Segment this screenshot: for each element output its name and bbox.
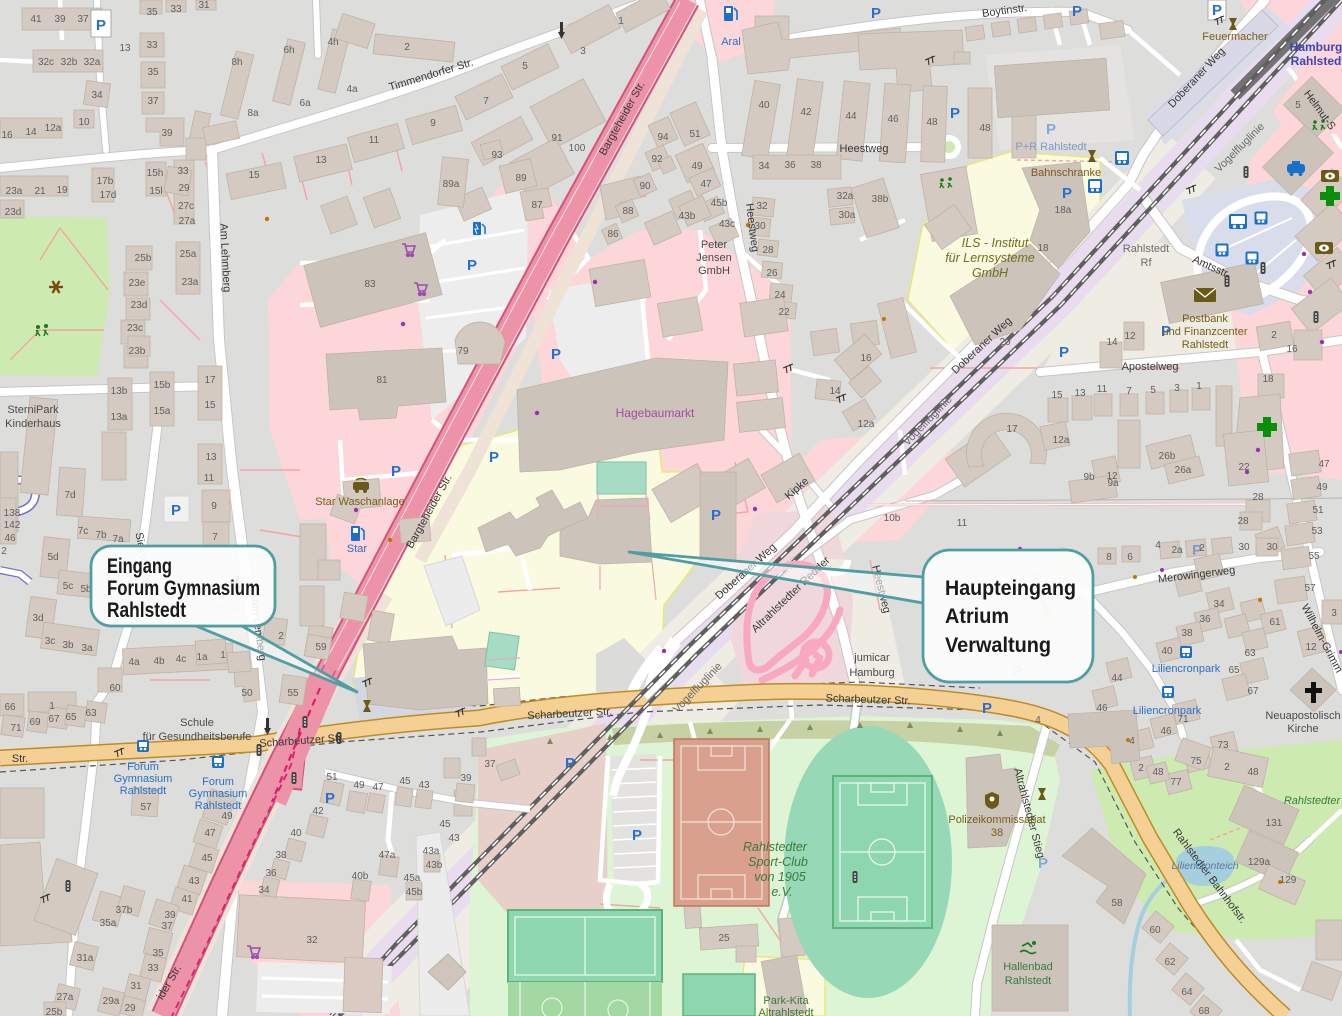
svg-text:5d: 5d (47, 552, 58, 563)
svg-text:P: P (871, 5, 881, 22)
svg-text:129a: 129a (1248, 857, 1271, 868)
svg-text:Forum: Forum (202, 776, 234, 788)
svg-text:71: 71 (1177, 714, 1189, 725)
svg-text:Liliencronpark: Liliencronpark (1152, 663, 1221, 675)
svg-text:38b: 38b (872, 194, 889, 205)
svg-text:46: 46 (1160, 726, 1172, 737)
svg-text:1: 1 (220, 650, 226, 661)
svg-text:35: 35 (146, 7, 158, 18)
svg-text:2: 2 (1, 546, 7, 557)
svg-text:4a: 4a (346, 84, 358, 95)
svg-text:43: 43 (418, 780, 430, 791)
svg-text:7c: 7c (78, 526, 89, 537)
svg-text:11: 11 (204, 473, 215, 484)
svg-text:48: 48 (926, 117, 938, 128)
svg-text:29a: 29a (103, 996, 120, 1007)
svg-text:37: 37 (161, 921, 173, 932)
svg-text:33: 33 (147, 963, 159, 974)
svg-text:37: 37 (484, 759, 496, 770)
svg-text:89a: 89a (443, 179, 460, 190)
svg-text:Park-Kita: Park-Kita (763, 995, 809, 1007)
svg-text:7: 7 (212, 532, 218, 543)
svg-text:24: 24 (774, 290, 786, 301)
svg-text:10b: 10b (884, 513, 901, 524)
svg-text:7: 7 (1126, 386, 1132, 397)
svg-text:P: P (171, 502, 181, 519)
svg-text:P: P (489, 449, 499, 466)
svg-text:Rahlstedt: Rahlstedt (1005, 975, 1051, 987)
svg-text:12: 12 (1305, 642, 1317, 653)
svg-text:35: 35 (147, 67, 159, 78)
svg-text:43: 43 (448, 833, 460, 844)
svg-text:51: 51 (326, 772, 338, 783)
svg-text:4: 4 (1155, 540, 1161, 551)
svg-text:49: 49 (691, 161, 703, 172)
svg-text:36: 36 (265, 868, 277, 879)
svg-text:38: 38 (991, 827, 1003, 839)
svg-text:41: 41 (30, 14, 42, 25)
svg-text:91: 91 (551, 133, 563, 144)
svg-text:Atrium: Atrium (945, 604, 1009, 628)
svg-text:P: P (1062, 185, 1072, 202)
svg-text:1: 1 (618, 16, 624, 27)
svg-text:36: 36 (784, 160, 796, 171)
svg-text:35: 35 (152, 948, 164, 959)
svg-text:23d: 23d (131, 300, 148, 311)
svg-text:18a: 18a (1055, 205, 1072, 216)
svg-text:39: 39 (164, 910, 176, 921)
svg-text:34: 34 (1213, 599, 1225, 610)
svg-text:Rahlstedter: Rahlstedter (1284, 795, 1342, 807)
svg-text:Rahlstedt-: Rahlstedt- (1291, 54, 1342, 68)
svg-text:Hagebaumarkt: Hagebaumarkt (616, 406, 695, 420)
svg-text:P: P (1046, 121, 1056, 138)
svg-text:63: 63 (85, 708, 97, 719)
svg-text:15: 15 (1051, 390, 1063, 401)
svg-text:46: 46 (4, 533, 16, 544)
svg-text:8h: 8h (231, 57, 242, 68)
svg-text:68: 68 (1198, 1006, 1210, 1016)
svg-text:17: 17 (204, 375, 216, 386)
svg-text:GmbH: GmbH (698, 265, 730, 277)
svg-text:28: 28 (762, 245, 774, 256)
svg-text:SterniPark: SterniPark (7, 404, 59, 416)
svg-text:66: 66 (4, 702, 16, 713)
svg-text:81: 81 (376, 375, 388, 386)
svg-text:GmbH: GmbH (972, 266, 1009, 280)
svg-text:22: 22 (1238, 462, 1250, 473)
svg-text:39: 39 (54, 14, 66, 25)
svg-text:3: 3 (1174, 383, 1180, 394)
svg-text:40: 40 (1161, 646, 1173, 657)
svg-text:55: 55 (287, 688, 299, 699)
svg-text:38: 38 (275, 850, 287, 861)
svg-text:13b: 13b (111, 386, 128, 397)
svg-text:131: 131 (1266, 818, 1283, 829)
svg-text:93: 93 (491, 150, 503, 161)
svg-text:2: 2 (1138, 763, 1144, 774)
svg-text:89: 89 (515, 173, 527, 184)
svg-text:P: P (467, 257, 477, 274)
svg-text:Aral: Aral (721, 36, 741, 48)
svg-text:6: 6 (1127, 552, 1133, 563)
svg-text:12: 12 (1106, 471, 1118, 482)
svg-text:30a: 30a (839, 210, 856, 221)
svg-text:Bahnschranke: Bahnschranke (1031, 167, 1101, 179)
svg-text:P+R Rahlstedt: P+R Rahlstedt (1015, 141, 1086, 153)
svg-text:25a: 25a (180, 249, 197, 260)
svg-text:67: 67 (1247, 686, 1259, 697)
svg-text:40b: 40b (352, 871, 369, 882)
svg-text:14: 14 (829, 386, 841, 397)
svg-text:Star Waschanlage: Star Waschanlage (315, 496, 404, 508)
svg-text:79: 79 (457, 346, 469, 357)
svg-text:Rahlstedt: Rahlstedt (195, 800, 241, 812)
svg-text:Kinderhaus: Kinderhaus (5, 418, 61, 430)
svg-text:Liliencronteich: Liliencronteich (1171, 860, 1238, 872)
svg-text:30: 30 (754, 221, 766, 232)
svg-text:10: 10 (78, 117, 90, 128)
svg-text:2: 2 (1271, 330, 1277, 341)
svg-text:29: 29 (124, 1003, 136, 1014)
svg-text:69: 69 (29, 717, 41, 728)
svg-text:11: 11 (957, 518, 968, 529)
svg-text:e.V.: e.V. (771, 885, 792, 899)
svg-text:33: 33 (170, 4, 182, 15)
svg-text:35a: 35a (100, 918, 117, 929)
svg-text:Jensen: Jensen (696, 252, 731, 264)
svg-text:34: 34 (91, 90, 103, 101)
svg-text:und Finanzcenter: und Finanzcenter (1163, 326, 1248, 338)
svg-text:86: 86 (607, 229, 619, 240)
svg-text:19: 19 (56, 185, 68, 196)
svg-text:83: 83 (364, 279, 376, 290)
svg-text:Haupteingang: Haupteingang (945, 576, 1076, 600)
svg-text:45a: 45a (404, 873, 421, 884)
svg-text:45: 45 (439, 819, 451, 830)
svg-text:13: 13 (205, 452, 217, 463)
svg-text:18: 18 (1262, 374, 1274, 385)
svg-text:23e: 23e (129, 278, 146, 289)
svg-text:138: 138 (4, 508, 21, 519)
svg-text:2a: 2a (1171, 545, 1183, 556)
svg-text:48: 48 (1152, 767, 1164, 778)
svg-text:47: 47 (204, 828, 216, 839)
svg-text:17b: 17b (97, 176, 114, 187)
svg-text:33: 33 (177, 166, 189, 177)
svg-text:3: 3 (580, 46, 586, 57)
svg-text:47a: 47a (379, 850, 396, 861)
svg-text:6h: 6h (283, 45, 294, 56)
svg-text:75: 75 (1190, 756, 1202, 767)
svg-text:39: 39 (460, 773, 472, 784)
svg-text:64: 64 (1181, 987, 1193, 998)
svg-text:26a: 26a (1175, 465, 1192, 476)
svg-text:51: 51 (1312, 505, 1324, 516)
svg-text:13: 13 (1074, 388, 1086, 399)
svg-text:Kirche: Kirche (1287, 723, 1318, 735)
svg-text:7b: 7b (95, 530, 107, 541)
svg-text:23d: 23d (5, 207, 22, 218)
svg-text:27c: 27c (178, 201, 194, 212)
svg-text:42: 42 (312, 806, 324, 817)
svg-text:37: 37 (147, 96, 159, 107)
svg-text:40: 40 (290, 828, 302, 839)
svg-text:für Lernsysteme: für Lernsysteme (945, 251, 1035, 265)
svg-text:34: 34 (758, 161, 770, 172)
svg-text:49: 49 (1316, 482, 1328, 493)
svg-text:Rahlstedt: Rahlstedt (120, 785, 166, 797)
svg-text:23a: 23a (6, 186, 23, 197)
svg-text:12a: 12a (45, 123, 62, 134)
svg-text:15l: 15l (149, 186, 162, 197)
svg-text:15: 15 (248, 170, 260, 181)
svg-text:45: 45 (201, 853, 213, 864)
svg-text:50: 50 (241, 688, 253, 699)
svg-text:26: 26 (766, 268, 778, 279)
svg-text:für Gesundheitsberufe: für Gesundheitsberufe (143, 731, 252, 743)
svg-text:31: 31 (130, 981, 142, 992)
svg-text:7: 7 (483, 96, 489, 107)
svg-text:61: 61 (1269, 617, 1281, 628)
svg-text:87: 87 (531, 200, 543, 211)
svg-text:53: 53 (1311, 526, 1323, 537)
svg-text:Hamburg-: Hamburg- (1290, 40, 1342, 54)
svg-text:Rahlstedter: Rahlstedter (743, 840, 808, 854)
svg-text:13: 13 (315, 155, 327, 166)
svg-text:32c: 32c (38, 57, 54, 68)
svg-text:42: 42 (800, 107, 812, 118)
svg-text:94: 94 (657, 132, 669, 143)
svg-text:16: 16 (860, 353, 872, 364)
svg-text:Feuermacher: Feuermacher (1202, 31, 1268, 43)
svg-text:15: 15 (204, 400, 216, 411)
svg-text:4b: 4b (153, 656, 165, 667)
svg-text:100: 100 (569, 143, 586, 154)
svg-text:65: 65 (1228, 665, 1240, 676)
svg-text:43b: 43b (679, 211, 696, 222)
svg-text:3d: 3d (32, 613, 43, 624)
svg-text:Star: Star (347, 543, 368, 555)
svg-text:jumicar: jumicar (853, 652, 890, 664)
svg-text:7d: 7d (64, 490, 75, 501)
svg-text:13: 13 (119, 43, 131, 54)
svg-text:4: 4 (1035, 715, 1041, 726)
svg-text:Neuapostolisch: Neuapostolisch (1265, 710, 1340, 722)
svg-text:57: 57 (1304, 583, 1316, 594)
svg-text:15b: 15b (154, 380, 171, 391)
svg-text:28: 28 (1237, 516, 1249, 527)
svg-text:1: 1 (49, 701, 55, 712)
svg-text:3: 3 (1331, 608, 1337, 619)
svg-text:4h: 4h (327, 37, 338, 48)
svg-text:23b: 23b (129, 346, 146, 357)
svg-text:3c: 3c (45, 636, 56, 647)
svg-text:Peter: Peter (701, 239, 728, 251)
svg-text:40: 40 (758, 100, 770, 111)
svg-text:P: P (982, 700, 992, 717)
svg-text:Verwaltung: Verwaltung (945, 633, 1051, 657)
svg-text:45b: 45b (406, 887, 423, 898)
svg-text:49: 49 (221, 811, 233, 822)
svg-text:92: 92 (651, 154, 663, 165)
svg-text:73: 73 (1217, 740, 1229, 751)
svg-text:45b: 45b (711, 198, 728, 209)
svg-text:45: 45 (399, 776, 411, 787)
svg-text:P: P (950, 105, 960, 122)
svg-text:30: 30 (1266, 542, 1278, 553)
svg-text:Hamburg: Hamburg (849, 667, 894, 679)
svg-text:32a: 32a (837, 191, 854, 202)
svg-text:25b: 25b (46, 1007, 63, 1016)
svg-text:25b: 25b (135, 253, 152, 264)
svg-text:6a: 6a (299, 98, 311, 109)
svg-text:17d: 17d (100, 190, 117, 201)
svg-text:4a: 4a (128, 657, 140, 668)
svg-text:20: 20 (999, 337, 1011, 348)
svg-text:48: 48 (979, 123, 991, 134)
svg-text:22: 22 (778, 307, 790, 318)
svg-text:48: 48 (1247, 767, 1259, 778)
svg-text:47: 47 (700, 179, 712, 190)
svg-text:4c: 4c (176, 654, 187, 665)
svg-text:15h: 15h (147, 168, 164, 179)
svg-text:1: 1 (1196, 381, 1202, 392)
svg-text:Apostelweg: Apostelweg (1122, 361, 1179, 373)
svg-text:8a: 8a (247, 108, 259, 119)
svg-text:39: 39 (161, 128, 173, 139)
svg-text:1a: 1a (196, 652, 208, 663)
svg-text:9b: 9b (1083, 472, 1095, 483)
svg-text:8: 8 (1106, 552, 1112, 563)
svg-text:47: 47 (1318, 459, 1330, 470)
svg-text:2: 2 (1199, 543, 1205, 554)
svg-text:28: 28 (1252, 492, 1264, 503)
svg-text:47: 47 (372, 782, 384, 793)
svg-text:P: P (1059, 344, 1069, 361)
svg-text:Str.: Str. (12, 753, 29, 765)
svg-text:46: 46 (1096, 703, 1108, 714)
svg-text:32: 32 (306, 935, 318, 946)
svg-text:38: 38 (1181, 628, 1193, 639)
svg-text:11: 11 (369, 135, 380, 146)
svg-text:58: 58 (1111, 898, 1123, 909)
svg-text:37: 37 (77, 14, 89, 25)
svg-text:ILS - Institut: ILS - Institut (962, 236, 1029, 250)
svg-text:9: 9 (211, 501, 217, 512)
svg-text:41: 41 (181, 894, 193, 905)
svg-text:P: P (325, 790, 335, 807)
svg-text:Sport-Club: Sport-Club (748, 855, 808, 869)
svg-text:Rahlstedt: Rahlstedt (1182, 339, 1228, 351)
svg-text:77: 77 (1170, 777, 1182, 788)
svg-text:51: 51 (689, 129, 701, 140)
svg-text:32b: 32b (61, 57, 78, 68)
svg-text:Altrahlstedt: Altrahlstedt (758, 1007, 813, 1016)
svg-text:18: 18 (1037, 243, 1049, 254)
svg-text:25: 25 (718, 933, 730, 944)
svg-text:Forum Gymnasium: Forum Gymnasium (107, 576, 260, 600)
svg-text:2: 2 (404, 42, 410, 53)
svg-text:5: 5 (522, 61, 528, 72)
svg-text:32a: 32a (84, 57, 101, 68)
svg-text:Gymnasium: Gymnasium (114, 773, 173, 785)
svg-text:5: 5 (1295, 100, 1301, 111)
svg-text:Schule: Schule (180, 717, 214, 729)
svg-text:11: 11 (1097, 384, 1108, 395)
svg-text:30: 30 (1238, 542, 1250, 553)
svg-text:33: 33 (146, 40, 158, 51)
svg-text:63: 63 (1244, 648, 1256, 659)
svg-text:5: 5 (1150, 385, 1156, 396)
svg-text:37b: 37b (116, 905, 133, 916)
svg-text:17: 17 (1006, 424, 1018, 435)
svg-text:P: P (551, 346, 561, 363)
svg-text:4: 4 (1129, 736, 1135, 747)
svg-text:29: 29 (178, 183, 190, 194)
svg-text:46: 46 (887, 114, 899, 125)
svg-text:Liliencronpark: Liliencronpark (1133, 705, 1202, 717)
svg-text:P: P (1212, 2, 1222, 19)
svg-text:142: 142 (4, 520, 21, 531)
svg-text:P: P (711, 507, 721, 524)
svg-text:62: 62 (1164, 957, 1176, 968)
svg-text:14: 14 (25, 127, 37, 138)
svg-text:Forum: Forum (127, 761, 159, 773)
svg-text:Heestweg: Heestweg (840, 143, 889, 155)
svg-text:60: 60 (1149, 925, 1161, 936)
svg-text:90: 90 (639, 181, 651, 192)
svg-text:129: 129 (1280, 875, 1297, 886)
svg-text:88: 88 (622, 206, 634, 217)
svg-text:49: 49 (353, 780, 365, 791)
svg-text:12a: 12a (858, 419, 875, 430)
svg-text:P: P (565, 755, 575, 772)
svg-text:12: 12 (1124, 331, 1136, 342)
svg-text:60: 60 (109, 683, 121, 694)
svg-text:Postbank: Postbank (1182, 313, 1228, 325)
svg-text:21: 21 (34, 186, 46, 197)
svg-text:34: 34 (258, 885, 270, 896)
svg-text:9: 9 (430, 118, 436, 129)
svg-text:44: 44 (1111, 673, 1123, 684)
svg-text:Rahlstedt: Rahlstedt (107, 598, 186, 622)
svg-text:27a: 27a (179, 216, 196, 227)
svg-text:2: 2 (1224, 762, 1230, 773)
svg-text:P: P (1072, 3, 1082, 20)
svg-text:7a: 7a (112, 534, 124, 545)
svg-text:von 1905: von 1905 (754, 870, 805, 884)
svg-text:55: 55 (1308, 551, 1320, 562)
svg-text:31: 31 (198, 0, 210, 11)
svg-text:3b: 3b (62, 640, 74, 651)
svg-text:12a: 12a (1053, 435, 1070, 446)
svg-text:59: 59 (315, 642, 327, 653)
svg-text:P: P (391, 463, 401, 480)
svg-text:43c: 43c (719, 219, 735, 230)
svg-text:P: P (632, 827, 642, 844)
svg-text:Eingang: Eingang (107, 554, 172, 578)
svg-text:43a: 43a (423, 846, 440, 857)
svg-text:23a: 23a (182, 277, 199, 288)
svg-text:36: 36 (1199, 614, 1211, 625)
svg-text:43b: 43b (426, 860, 443, 871)
svg-text:Rf: Rf (1141, 257, 1153, 269)
svg-text:43: 43 (188, 876, 200, 887)
svg-text:Hallenbad: Hallenbad (1003, 961, 1053, 973)
svg-text:26b: 26b (1159, 451, 1176, 462)
svg-text:16: 16 (1, 130, 13, 141)
